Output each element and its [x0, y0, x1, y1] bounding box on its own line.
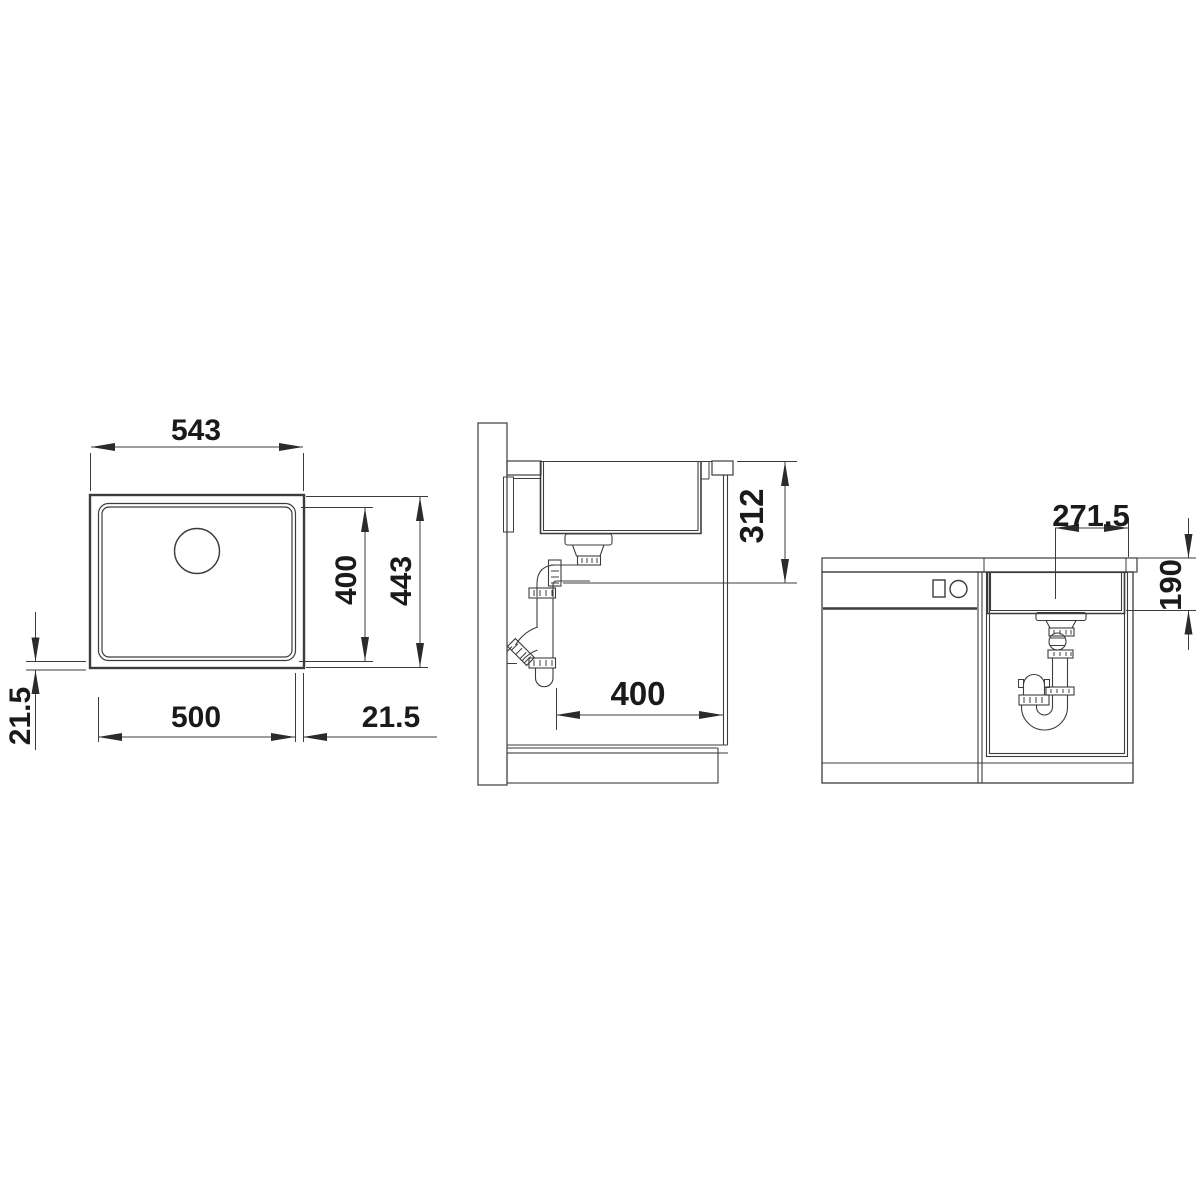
dim-label-drain-center-offset: 271.5 [1052, 498, 1130, 533]
bowl-section [541, 462, 702, 534]
siphon-wall-collar [508, 639, 535, 666]
dim-bowl-length: 400 [299, 508, 373, 662]
siphon-u-bend [1022, 695, 1068, 730]
bowl-edge-inner [102, 507, 292, 657]
dim-rim-offset-right: 21.5 [303, 673, 437, 742]
dim-label-bowl-width: 500 [171, 701, 221, 734]
dim-label-drain-height: 312 [733, 488, 770, 543]
siphon-outlet-cap [1024, 675, 1045, 696]
dim-bowl-depth: 190 [1126, 518, 1196, 650]
counter-front-hatch-right [1126, 558, 1137, 572]
technical-drawing-page: 543 500 21.5 400 443 21.5 [0, 0, 1200, 1200]
dim-bowl-width: 500 [98, 673, 296, 742]
counter-front-outline [822, 558, 1137, 572]
counter-front-hatch-left [822, 558, 984, 572]
dim-rim-offset-bottom: 21.5 [4, 612, 86, 750]
plinth-section [507, 753, 718, 783]
dim-drain-center-offset: 271.5 [1052, 498, 1130, 599]
dim-label-rim-offset-bottom: 21.5 [4, 687, 37, 745]
appliance-knob-icon [950, 581, 967, 598]
strainer-nut-ribs [582, 558, 597, 563]
drain-strainer-front [1036, 613, 1086, 637]
front-view: 271.5 190 [822, 498, 1196, 783]
wall-section-hatch [478, 423, 507, 785]
dim-total-width: 543 [91, 414, 304, 491]
section-view: 312 400 [478, 423, 797, 785]
sink-installation-drawing: 543 500 21.5 400 443 21.5 [0, 0, 1200, 1200]
appliance-display-icon [933, 580, 945, 597]
drain-strainer-side [565, 534, 612, 565]
dim-label-total-width: 543 [171, 414, 221, 447]
dim-label-bowl-depth: 190 [1153, 559, 1188, 611]
dim-clearance-depth: 400 [556, 675, 723, 730]
sink-cabinet-door-outer [987, 573, 1128, 757]
dim-label-bowl-length: 400 [330, 555, 363, 605]
sink-rim-outer [90, 495, 304, 668]
sink-flange-lines [513, 462, 709, 480]
siphon-front [1019, 633, 1075, 730]
dim-label-clearance-depth: 400 [610, 675, 665, 712]
top-view: 543 500 21.5 400 443 21.5 [4, 414, 437, 750]
dim-label-rim-offset-right: 21.5 [362, 701, 420, 734]
cabinet-divider [978, 572, 982, 783]
wall-batten [504, 477, 514, 532]
siphon-side [507, 560, 590, 687]
bowl-edge-outer [99, 504, 296, 661]
sink-outline-plan [90, 495, 304, 668]
drain-hole [175, 529, 220, 574]
siphon-cleanout-cap [536, 668, 554, 687]
counter-section-left [507, 461, 541, 475]
counter-section-right [712, 461, 733, 475]
dim-label-total-depth: 443 [385, 556, 418, 606]
